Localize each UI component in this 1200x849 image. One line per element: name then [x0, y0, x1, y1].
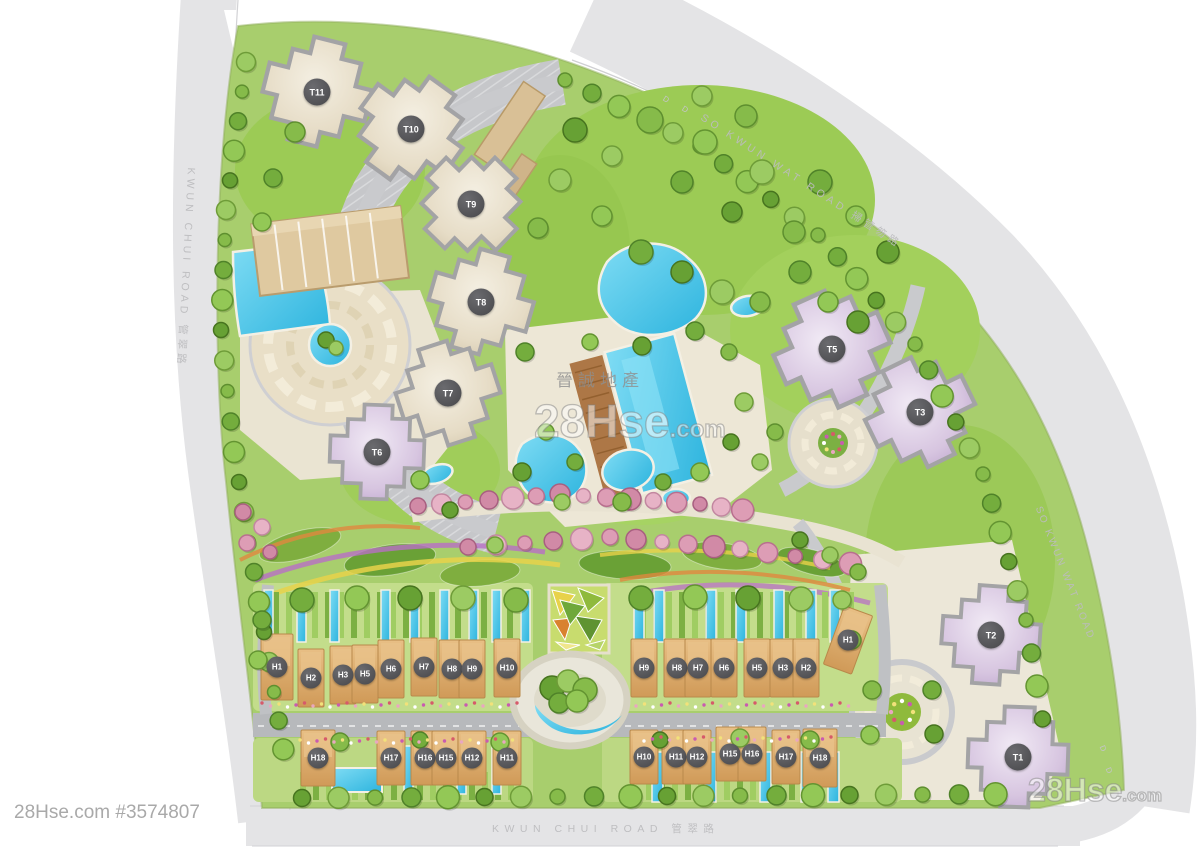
marker-t9: T9: [458, 191, 485, 218]
marker-h15: H15: [720, 744, 741, 765]
marker-h11: H11: [666, 747, 687, 768]
marker-h17: H17: [381, 748, 402, 769]
marker-h2: H2: [796, 658, 817, 679]
marker-h3: H3: [773, 658, 794, 679]
watermark-brand-suffix: .com: [1122, 786, 1162, 805]
marker-h3: H3: [333, 665, 354, 686]
marker-h11: H11: [497, 748, 518, 769]
marker-t11: T11: [304, 79, 331, 106]
marker-t8: T8: [468, 289, 495, 316]
marker-h17: H17: [776, 747, 797, 768]
marker-h10: H10: [634, 747, 655, 768]
watermark-brand: 28Hse: [534, 395, 670, 447]
marker-h5: H5: [747, 658, 768, 679]
watermark-center-logo: 28Hse.com: [534, 394, 726, 448]
central-east-plaza: [789, 399, 877, 487]
road-label-bottom: KWUN CHUI ROAD 管翠路: [492, 821, 719, 836]
marker-t10: T10: [398, 116, 425, 143]
marker-h6: H6: [714, 658, 735, 679]
marker-h12: H12: [462, 748, 483, 769]
marker-h18: H18: [308, 748, 329, 769]
marker-h10: H10: [497, 658, 518, 679]
siteplan-stage: T11T10T9T8T7T6T5T3T2T1H1H2H3H5H6H7H8H9H1…: [0, 0, 1200, 849]
marker-h7: H7: [414, 657, 435, 678]
marker-h8: H8: [667, 658, 688, 679]
marker-t7: T7: [435, 380, 462, 407]
marker-h1: H1: [267, 657, 288, 678]
watermark-brand-suffix: .com: [670, 416, 726, 443]
marker-h7: H7: [688, 658, 709, 679]
watermark-agency: 晉誠地產: [556, 366, 644, 391]
marker-h2: H2: [301, 668, 322, 689]
marker-t1: T1: [1005, 744, 1032, 771]
marker-h12: H12: [687, 747, 708, 768]
marker-h15: H15: [436, 748, 457, 769]
marker-h8: H8: [442, 659, 463, 680]
marker-h9: H9: [634, 658, 655, 679]
watermark-brand: 28Hse: [1028, 772, 1122, 808]
marker-h18: H18: [810, 748, 831, 769]
marker-h6: H6: [381, 659, 402, 680]
marker-t5: T5: [819, 336, 846, 363]
marker-h16: H16: [415, 748, 436, 769]
mosaic-garden: [549, 585, 609, 653]
marker-h5: H5: [355, 664, 376, 685]
marker-t6: T6: [364, 439, 391, 466]
watermark-bottom-right-logo: 28Hse.com: [1028, 772, 1162, 809]
marker-h9: H9: [462, 659, 483, 680]
marker-t2: T2: [978, 622, 1005, 649]
marker-h16: H16: [742, 744, 763, 765]
marker-h1: H1: [838, 630, 859, 651]
watermark-listing-id: 28Hse.com #3574807: [14, 802, 200, 824]
marker-t3: T3: [907, 399, 934, 426]
